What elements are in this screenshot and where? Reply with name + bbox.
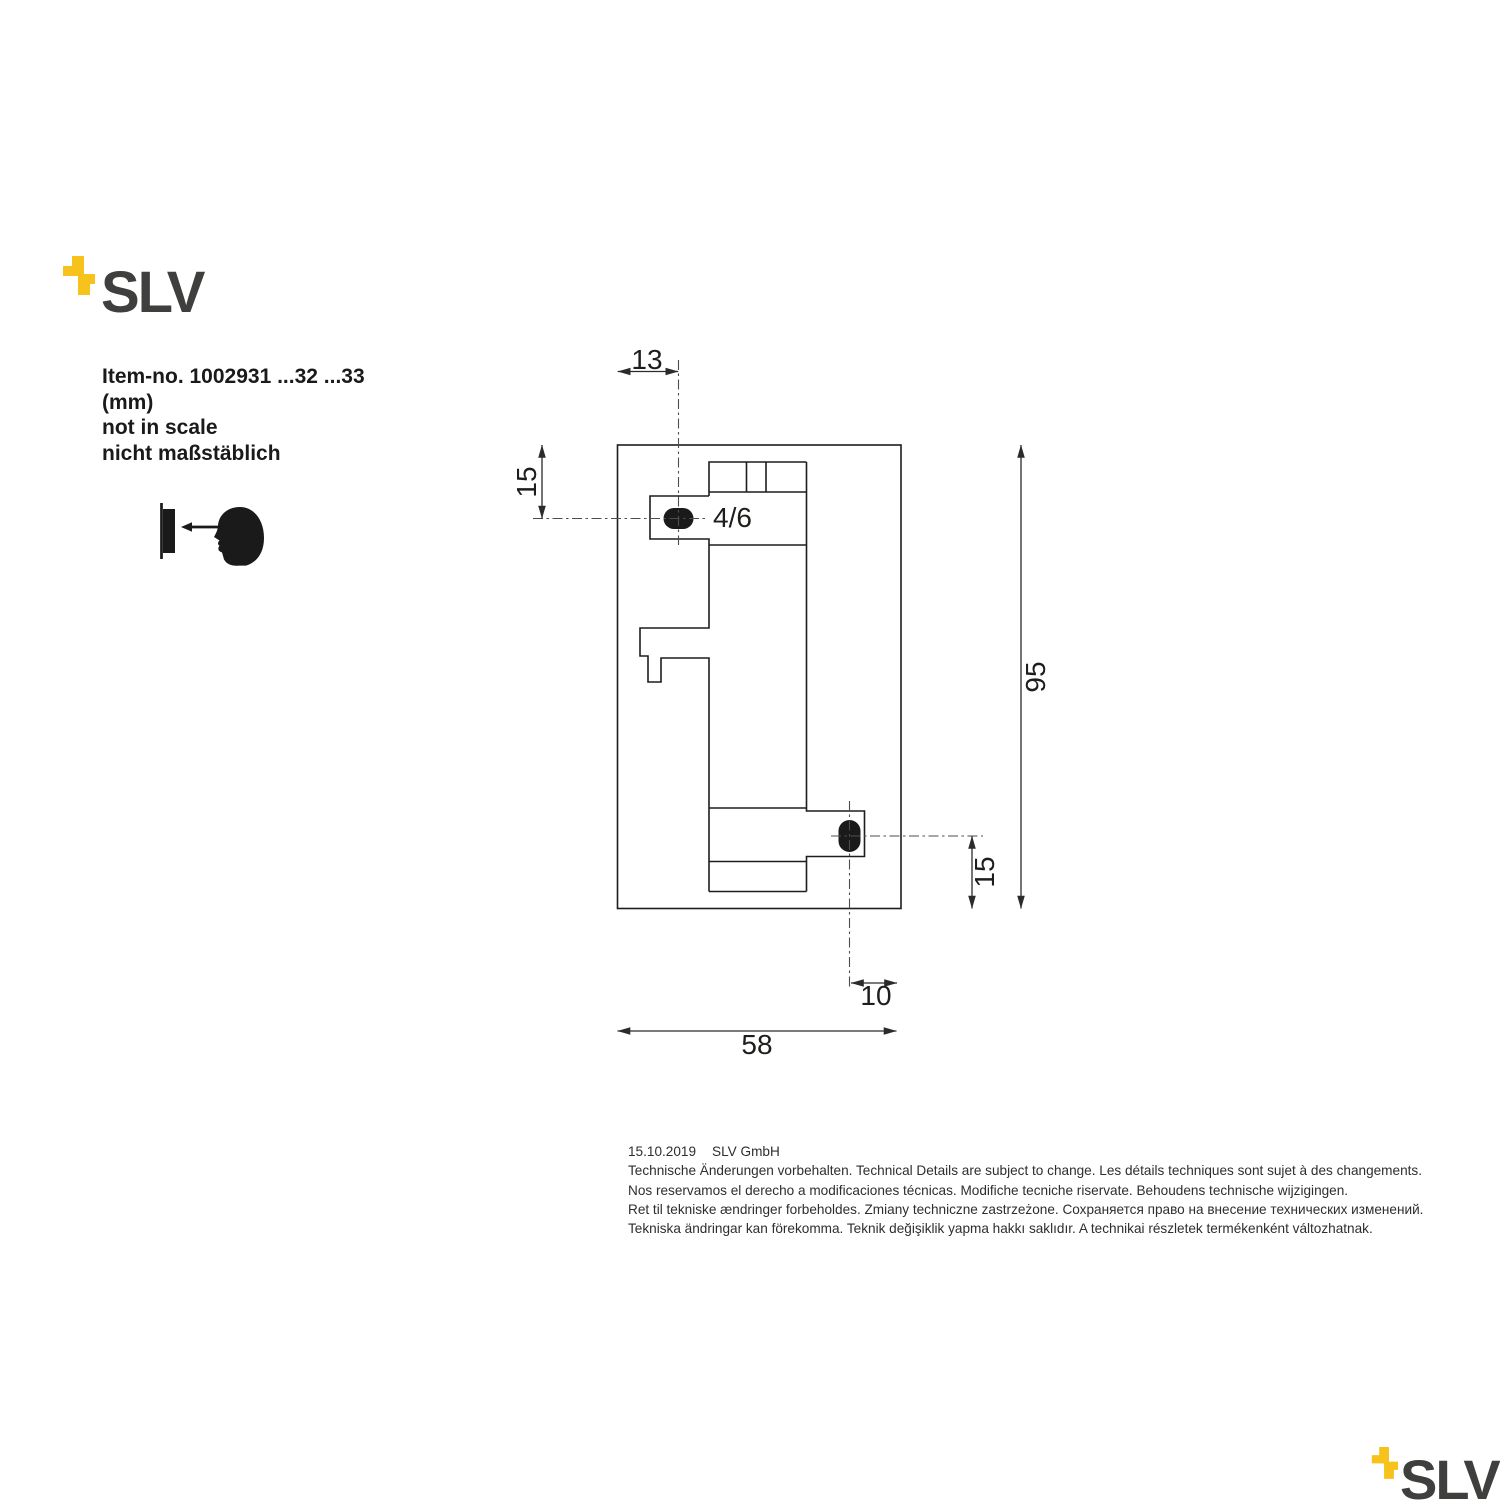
head-silhouette-icon (214, 507, 264, 566)
footer-date: 15.10.2019 (628, 1144, 696, 1159)
view-arrow-head (181, 522, 192, 532)
footer-company: SLV GmbH (712, 1144, 780, 1159)
technical-drawing: 13 15 95 15 10 58 4/6 (0, 0, 1500, 1500)
footer-logo-text: SLV (1400, 1452, 1499, 1500)
dim-text-58: 58 (741, 1029, 772, 1060)
footer-disclaimer-line: Ret til tekniske ændringer forbeholdes. … (628, 1200, 1423, 1219)
dimension-overall-height: 95 (1020, 445, 1051, 909)
dim-text-15-top: 15 (511, 466, 542, 497)
profile-section (618, 445, 902, 909)
footer-disclaimer-line: Nos reservamos el derecho a modificacion… (628, 1181, 1423, 1200)
datasheet-page: SLV Item-no. 1002931 ...32 ...33 (mm) no… (0, 0, 1500, 1500)
dim-text-10: 10 (860, 980, 891, 1011)
centerlines (533, 360, 983, 990)
dimension-top-hole-depth: 15 (511, 445, 542, 519)
footer-disclaimer-line: Technische Änderungen vorbehalten. Techn… (628, 1161, 1423, 1180)
dimension-bottom-hole-depth: 15 (969, 836, 1000, 909)
footer-date-line: 15.10.2019SLV GmbH (628, 1142, 1423, 1161)
dimension-top-offset: 13 (618, 344, 679, 375)
dim-text-13: 13 (631, 344, 662, 375)
dim-text-95: 95 (1020, 661, 1051, 692)
dimension-bottom-offset: 10 (851, 980, 897, 1011)
dimension-overall-width: 58 (618, 1029, 897, 1060)
dim-text-15-bottom: 15 (969, 856, 1000, 887)
slv-plus-icon (1371, 1446, 1398, 1479)
footer-block: 15.10.2019SLV GmbH Technische Änderungen… (628, 1142, 1423, 1238)
footer-disclaimer-line: Tekniska ändringar kan förekomma. Teknik… (628, 1219, 1423, 1238)
fixture-rect (163, 509, 175, 553)
hole-size-label: 4/6 (713, 502, 752, 533)
view-direction-icon (162, 503, 265, 566)
